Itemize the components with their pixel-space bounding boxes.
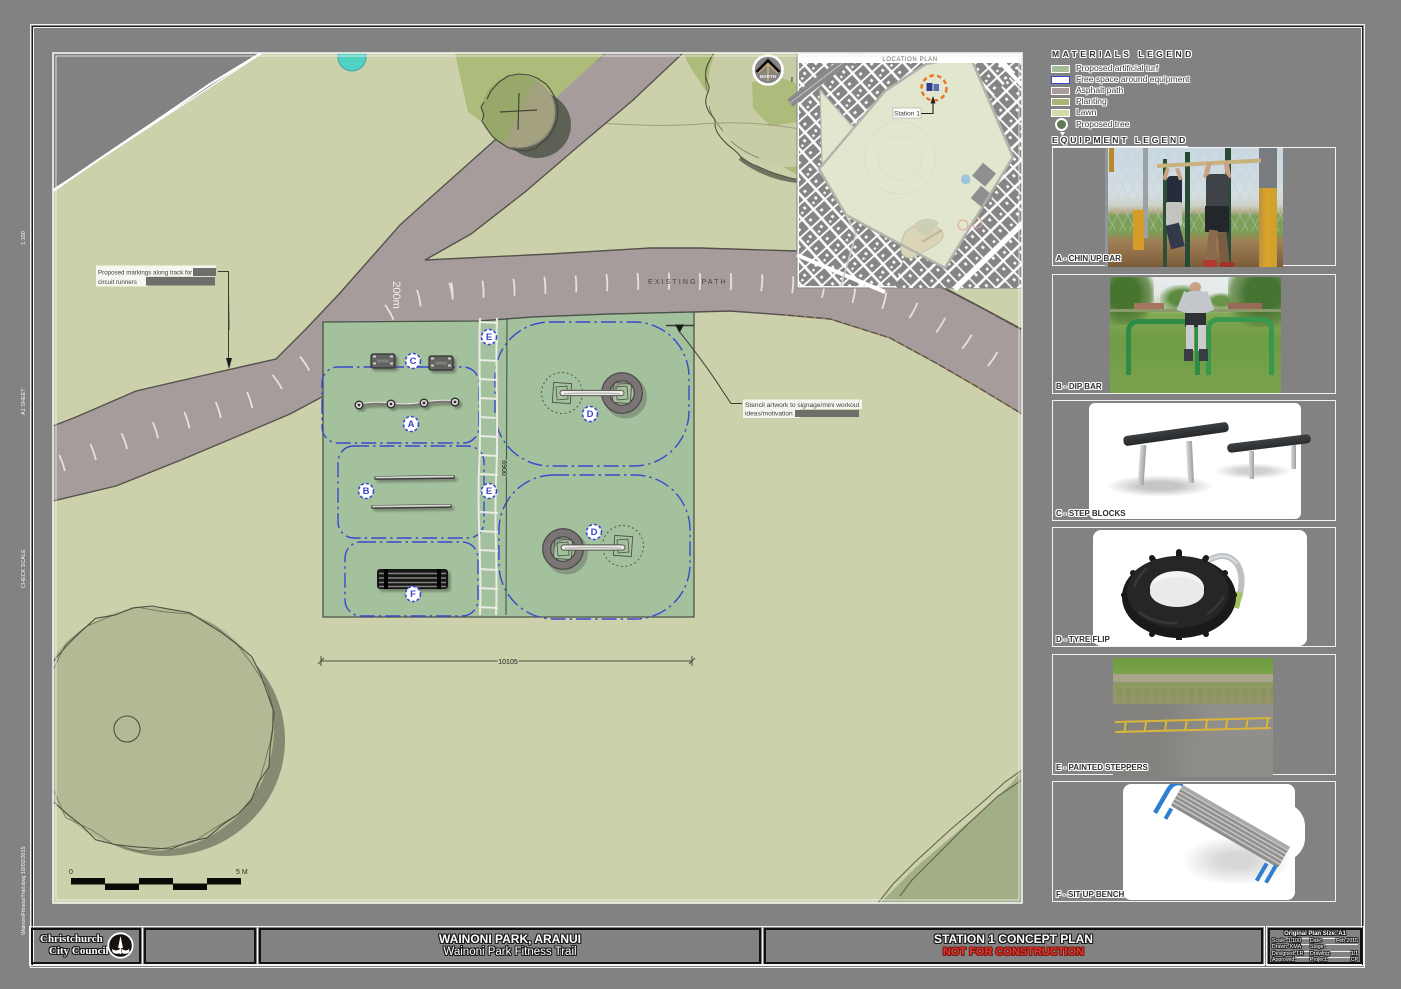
svg-text:D: D xyxy=(591,527,598,538)
svg-text:EXISTING PATH: EXISTING PATH xyxy=(648,277,728,286)
svg-text:ideas/motivation: ideas/motivation xyxy=(745,411,793,418)
svg-text:10105: 10105 xyxy=(498,659,518,666)
svg-text:6900: 6900 xyxy=(500,460,507,476)
svg-text:0: 0 xyxy=(69,869,73,876)
svg-text:C: C xyxy=(410,356,417,367)
svg-text:E: E xyxy=(486,332,492,343)
svg-text:B: B xyxy=(363,486,370,497)
svg-text:F: F xyxy=(410,589,416,600)
svg-text:5 M: 5 M xyxy=(236,869,248,876)
svg-text:Proposed markings along track: Proposed markings along track for xyxy=(98,270,192,277)
svg-text:200m: 200m xyxy=(390,281,402,309)
svg-text:LOCATION PLAN: LOCATION PLAN xyxy=(882,57,937,63)
svg-text:Stencil artwork to signage/min: Stencil artwork to signage/mini workout xyxy=(745,402,860,409)
svg-text:circuit runners: circuit runners xyxy=(98,279,137,286)
svg-text:E: E xyxy=(486,486,492,497)
svg-text:D: D xyxy=(587,409,594,420)
svg-text:NORTH: NORTH xyxy=(760,74,776,79)
svg-text:Station 1: Station 1 xyxy=(894,111,920,118)
svg-text:A: A xyxy=(408,419,415,430)
